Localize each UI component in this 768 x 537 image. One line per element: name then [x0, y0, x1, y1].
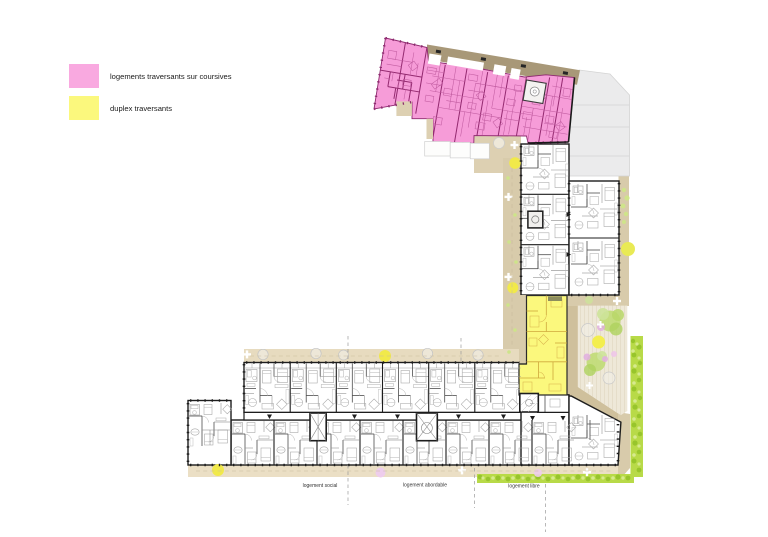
- svg-text:duplex traversants: duplex traversants: [110, 104, 172, 113]
- svg-text:logement abordable: logement abordable: [403, 483, 447, 489]
- svg-text:logements traversants sur cour: logements traversants sur coursives: [110, 72, 232, 81]
- svg-text:logement social: logement social: [303, 483, 338, 489]
- svg-text:logement libre: logement libre: [508, 484, 540, 490]
